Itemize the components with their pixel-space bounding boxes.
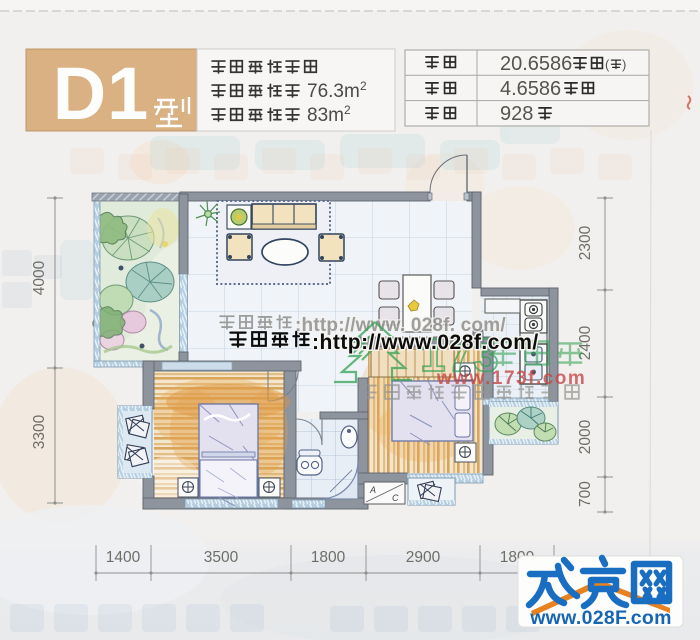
- svg-text:2: 2: [360, 79, 367, 93]
- svg-text:4.6586: 4.6586: [500, 78, 561, 100]
- svg-text:3500: 3500: [204, 549, 239, 566]
- svg-text:): ): [622, 57, 626, 72]
- svg-text:D1: D1: [53, 52, 150, 135]
- svg-text:3300: 3300: [31, 414, 48, 449]
- svg-text:1800: 1800: [311, 549, 346, 566]
- svg-text:2300: 2300: [577, 225, 594, 260]
- svg-text:C: C: [392, 493, 399, 503]
- svg-text:1400: 1400: [106, 549, 141, 566]
- svg-text:700: 700: [577, 481, 594, 507]
- svg-text:4000: 4000: [31, 260, 48, 295]
- svg-text:www.028F.com: www.028F.com: [529, 607, 672, 629]
- svg-text:2: 2: [344, 103, 351, 117]
- svg-text:A: A: [369, 485, 376, 495]
- svg-text::http://www.028f.com/: :http://www.028f.com/: [312, 331, 539, 354]
- svg-text:928: 928: [500, 103, 533, 125]
- svg-text:20.6586: 20.6586: [500, 53, 572, 75]
- svg-text:76.3m: 76.3m: [307, 81, 360, 102]
- svg-text:83m: 83m: [307, 105, 344, 126]
- svg-text:2000: 2000: [577, 419, 594, 454]
- svg-text:2900: 2900: [406, 549, 441, 566]
- svg-text:(: (: [605, 57, 610, 72]
